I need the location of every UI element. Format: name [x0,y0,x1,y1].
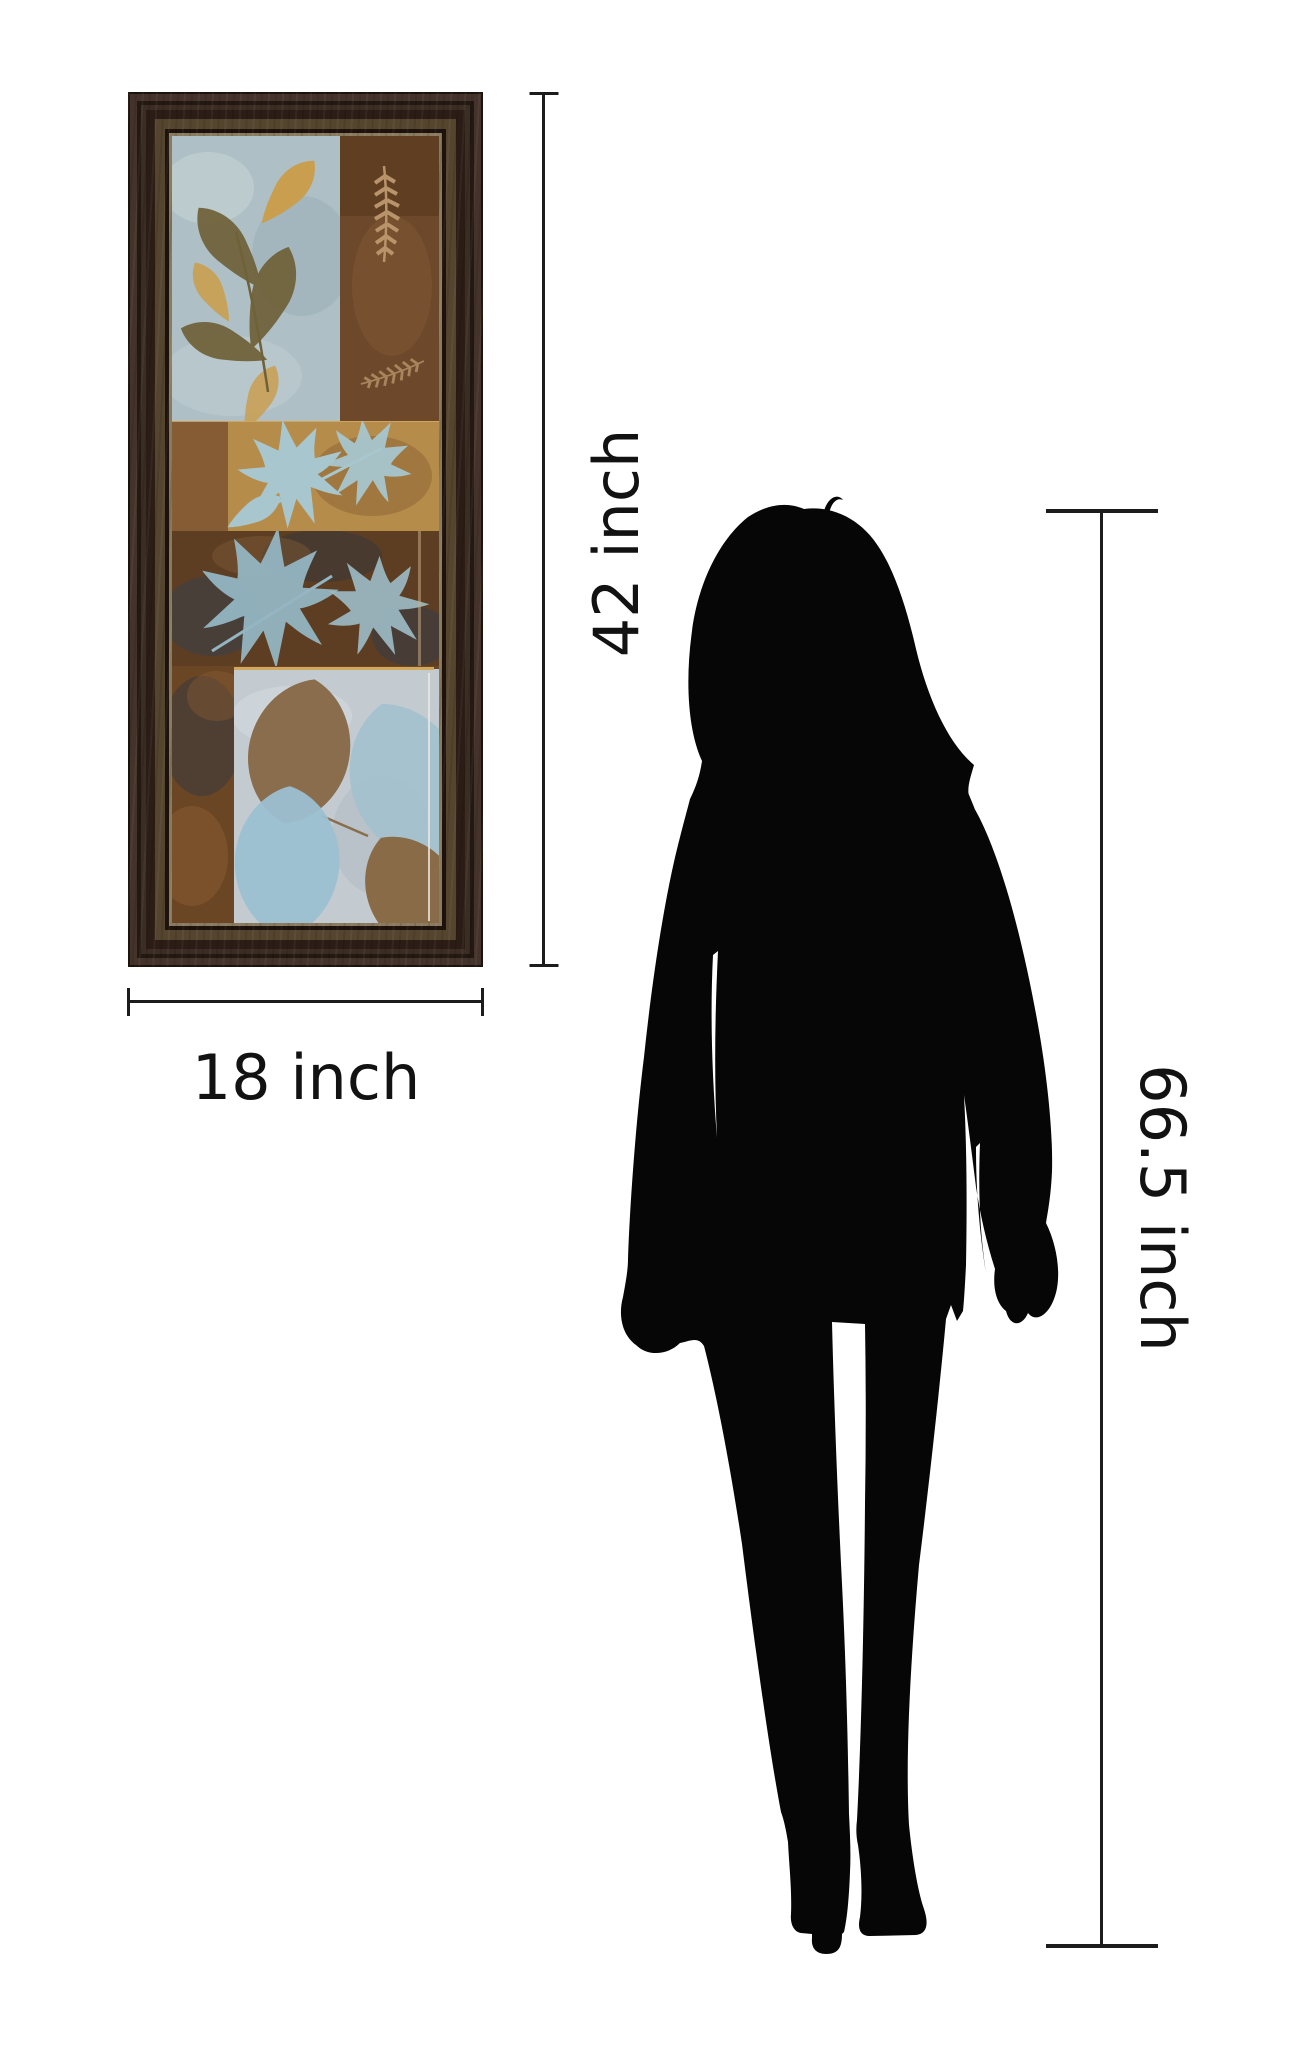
art-panel-gold-band [172,401,439,537]
art-panel-brown-column [340,136,439,421]
woman-silhouette-graphic [612,491,1064,1958]
art-panel-top-blue [172,136,352,436]
woman-silhouette-path [621,505,1058,1954]
art-print [172,136,439,923]
person-height-dimension-line [1100,510,1103,1947]
woman-silhouette [612,491,1064,1958]
artwork-height-dimension-line [542,93,545,966]
artwork-width-dimension-line [128,1000,483,1003]
framed-artwork [128,92,483,967]
artwork-width-label: 18 inch [156,1047,456,1109]
art-panel-bottom [172,666,439,923]
size-comparison-figure: 42 inch 18 inch 66.5 inch [0,0,1296,2048]
leaf-collage-print [172,136,439,923]
art-panel-rust-band [172,517,439,676]
person-height-label: 66.5 inch [1131,1028,1193,1388]
